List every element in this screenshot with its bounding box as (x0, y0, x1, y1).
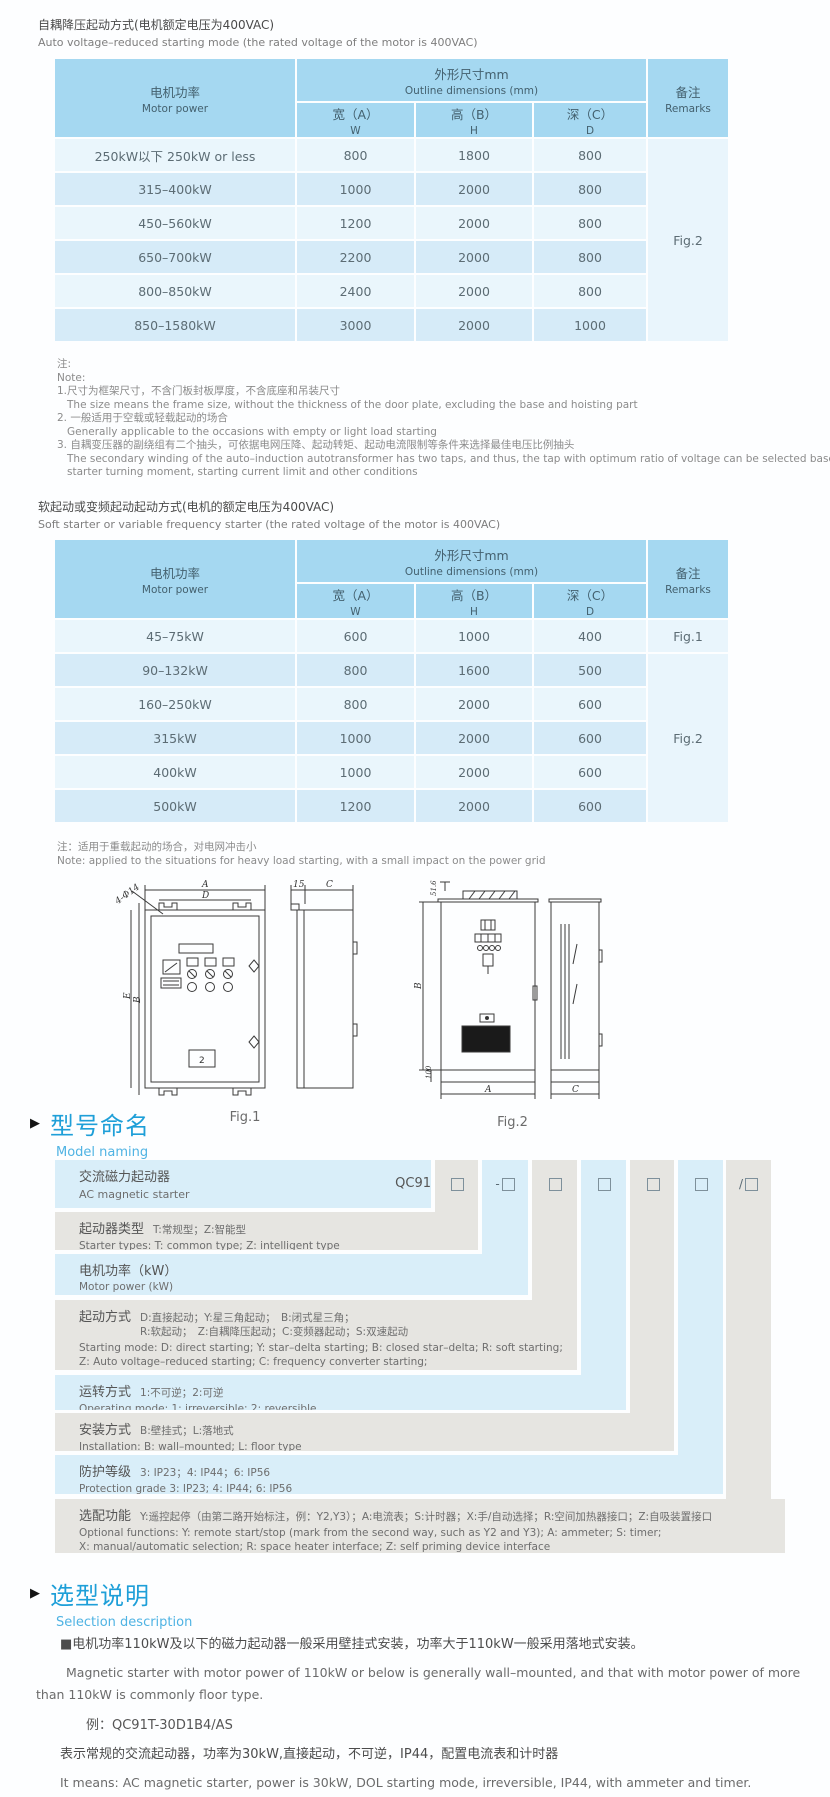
note-line: 1.尺寸为框架尺寸，不含门板封板厚度，不含底座和吊装尺寸 (57, 385, 830, 399)
fig1-block: A D 4-Φ14 E B 15 C 2 Fig.1 (115, 874, 375, 1125)
selection-body: ■电机功率110kW及以下的磁力起动器一般采用壁挂式安装，功率大于110kW一般… (36, 1636, 808, 1792)
code-box-slot: / (726, 1171, 771, 1197)
note-line: The size means the frame size, without t… (57, 399, 830, 413)
section-title-zh: 选型说明 (50, 1576, 150, 1611)
header-motor-power-en: Motor power (55, 103, 295, 115)
dim-label: D (201, 891, 209, 901)
header-remarks-en: Remarks (648, 103, 728, 115)
header-remarks: 备注 Remarks (648, 59, 728, 137)
code-box-slot (532, 1171, 577, 1197)
table1-title-zh: 自耦降压起动方式(电机额定电压为400VAC) (38, 16, 478, 33)
note-line: The secondary winding of the auto–induct… (57, 453, 830, 467)
naming-row-operating-mode: 运转方式1:不可逆；2:可逆 Operating mode: 1: irreve… (55, 1375, 626, 1410)
fig1-caption: Fig.1 (115, 1110, 375, 1125)
note-line: starter turning moment, starting current… (57, 466, 830, 480)
model-naming-heading: ▶ 型号命名 Model naming (30, 1106, 150, 1160)
dim-label: E (123, 992, 133, 1000)
model-code-box (695, 1178, 708, 1191)
remark-cell: Fig.2 (648, 139, 728, 341)
dim-label: B (414, 982, 424, 990)
dim-label: A (484, 1085, 492, 1095)
naming-row-starter-type: 起动器类型T:常规型；Z:智能型 Starter types: T: commo… (55, 1212, 478, 1250)
table-row: 160–250kW8002000600 (55, 688, 728, 720)
selection-example-en: It means: AC magnetic starter, power is … (60, 1774, 808, 1792)
table-row: 250kW以下 250kW or less8001800800 Fig.2 (55, 139, 728, 171)
table-row: 500kW12002000600 (55, 790, 728, 822)
table1-title-block: 自耦降压起动方式(电机额定电压为400VAC) Auto voltage–red… (38, 16, 478, 49)
code-box-slot: - (482, 1171, 528, 1197)
header-height: 高（B）H (416, 103, 532, 137)
header-outline: 外形尺寸mm Outline dimensions (mm) (297, 59, 646, 101)
panel-label: 2 (199, 1056, 205, 1066)
note-line: Note: applied to the situations for heav… (57, 855, 546, 869)
naming-row-product: 交流磁力起动器 AC magnetic starter (55, 1160, 431, 1208)
model-code-box (502, 1178, 515, 1191)
table2-title-zh: 软起动或变频起动起动方式(电机的额定电压为400VAC) (38, 498, 500, 515)
header-depth: 深（C）D (534, 103, 646, 137)
header-outline: 外形尺寸mmOutline dimensions (mm) (297, 540, 646, 582)
note-line: 注: (57, 358, 830, 372)
model-code-box (598, 1178, 611, 1191)
header-width: 宽（A）W (297, 103, 414, 137)
model-code-box (647, 1178, 660, 1191)
table2-title-block: 软起动或变频起动起动方式(电机的额定电压为400VAC) Soft starte… (38, 498, 500, 531)
model-code: QC91 (391, 1176, 431, 1191)
header-depth: 深（C）D (534, 584, 646, 618)
table-row: 400kW10002000600 (55, 756, 728, 788)
naming-row-motor-power: 电机功率（kW） Motor power (kW) (55, 1254, 528, 1295)
section-title-zh: 型号命名 (50, 1106, 150, 1141)
header-outline-zh: 外形尺寸mm (297, 64, 646, 83)
dim-label: 100 (425, 1065, 433, 1079)
selection-example-zh: 表示常规的交流起动器，功率为30kW,直接起动，不可逆，IP44，配置电流表和计… (60, 1746, 808, 1765)
section-title-en: Selection description (56, 1615, 192, 1630)
note-line: 3. 自耦变压器的副绕组有二个抽头，可依据电网压降、起动转矩、起动电流限制等条件… (57, 439, 830, 453)
header-remarks-zh: 备注 (648, 82, 728, 101)
table-row: 315kW10002000600 (55, 722, 728, 754)
fig1-drawing: A D 4-Φ14 E B 15 C 2 (115, 874, 375, 1104)
fig2-block: 51.6 B 100 A C Fig.2 (405, 874, 620, 1130)
selection-paragraph-en: Magnetic starter with motor power of 110… (36, 1662, 808, 1707)
section-arrow-icon: ▶ (30, 1586, 40, 1601)
table-row: 90–132kW8001600500 Fig.2 (55, 654, 728, 686)
naming-product-zh: 交流磁力起动器 (79, 1166, 431, 1185)
note-line: Note: (57, 372, 830, 386)
dim-label: A (201, 880, 209, 890)
code-column-7 (726, 1160, 771, 1499)
naming-row-protection-grade: 防护等级3: IP23；4: IP44；6: IP56 Protection g… (55, 1455, 723, 1494)
auto-voltage-table: 电机功率 Motor power 外形尺寸mm Outline dimensio… (53, 57, 730, 343)
code-box-slot (435, 1171, 478, 1197)
table-header-row: 电机功率Motor power 外形尺寸mmOutline dimensions… (55, 540, 728, 582)
note-line: 2. 一般适用于空载或轻载起动的场合 (57, 412, 830, 426)
section-title-en: Model naming (56, 1145, 150, 1160)
model-code-box (549, 1178, 562, 1191)
header-motor-power-zh: 电机功率 (55, 82, 295, 101)
model-code-box (451, 1178, 464, 1191)
section-arrow-icon: ▶ (30, 1116, 40, 1131)
dim-label: 15 (293, 880, 305, 890)
soft-starter-table: 电机功率Motor power 外形尺寸mmOutline dimensions… (53, 538, 730, 824)
naming-row-optional-functions: 选配功能Y:遥控起停（由第二路开始标注，例：Y2,Y3）；A:电流表；S:计时器… (55, 1499, 785, 1553)
naming-row-starting-mode: 起动方式D:直接起动；Y:星三角起动； B:闭式星三角； R:软起动； Z:自耦… (55, 1300, 577, 1370)
table-row: 650–700kW22002000800 (55, 241, 728, 273)
naming-row-installation: 安装方式B:壁挂式；L:落地式 Installation: B: wall–mo… (55, 1413, 674, 1451)
code-box-slot (630, 1171, 674, 1197)
model-naming-diagram: 交流磁力起动器 AC magnetic starter QC91 - / 起动器… (55, 1160, 785, 1553)
selection-paragraph-zh: ■电机功率110kW及以下的磁力起动器一般采用壁挂式安装，功率大于110kW一般… (60, 1636, 808, 1655)
table-header-row: 电机功率 Motor power 外形尺寸mm Outline dimensio… (55, 59, 728, 101)
note-line: 注：适用于重载起动的场合，对电网冲击小 (57, 841, 546, 855)
table-row: 850–1580kW300020001000 (55, 309, 728, 341)
header-width: 宽（A）W (297, 584, 414, 618)
dim-label: C (572, 1085, 579, 1095)
table-row: 800–850kW24002000800 (55, 275, 728, 307)
header-outline-en: Outline dimensions (mm) (297, 85, 646, 97)
code-box-slot (678, 1171, 723, 1197)
header-height: 高（B）H (416, 584, 532, 618)
remark-cell: Fig.2 (648, 654, 728, 822)
table2-note: 注：适用于重载起动的场合，对电网冲击小 Note: applied to the… (57, 841, 546, 868)
table-row: 45–75kW6001000400 Fig.1 (55, 620, 728, 652)
note-line: Generally applicable to the occasions wi… (57, 426, 830, 440)
fig2-drawing: 51.6 B 100 A C (405, 874, 620, 1109)
dim-label: C (326, 880, 333, 890)
fig2-caption: Fig.2 (405, 1115, 620, 1130)
header-motor-power: 电机功率 Motor power (55, 59, 295, 137)
table1-title-en: Auto voltage–reduced starting mode (the … (38, 36, 478, 49)
table-row: 450–560kW12002000800 (55, 207, 728, 239)
model-code-box (745, 1178, 758, 1191)
table-row: 315–400kW10002000800 (55, 173, 728, 205)
naming-product-en: AC magnetic starter (79, 1188, 431, 1201)
selection-example-code: 例：QC91T-30D1B4/AS (86, 1717, 808, 1736)
header-remarks: 备注Remarks (648, 540, 728, 618)
header-motor-power: 电机功率Motor power (55, 540, 295, 618)
dim-label: 51.6 (430, 880, 438, 896)
code-column-6 (678, 1160, 723, 1455)
remark-cell: Fig.1 (648, 620, 728, 652)
dim-label: B (133, 996, 143, 1004)
table2-title-en: Soft starter or variable frequency start… (38, 518, 500, 531)
table1-notes: 注: Note: 1.尺寸为框架尺寸，不含门板封板厚度，不含底座和吊装尺寸 Th… (57, 358, 830, 480)
code-box-slot (581, 1171, 626, 1197)
code-column-5 (630, 1160, 674, 1413)
selection-heading: ▶ 选型说明 Selection description (30, 1576, 192, 1630)
